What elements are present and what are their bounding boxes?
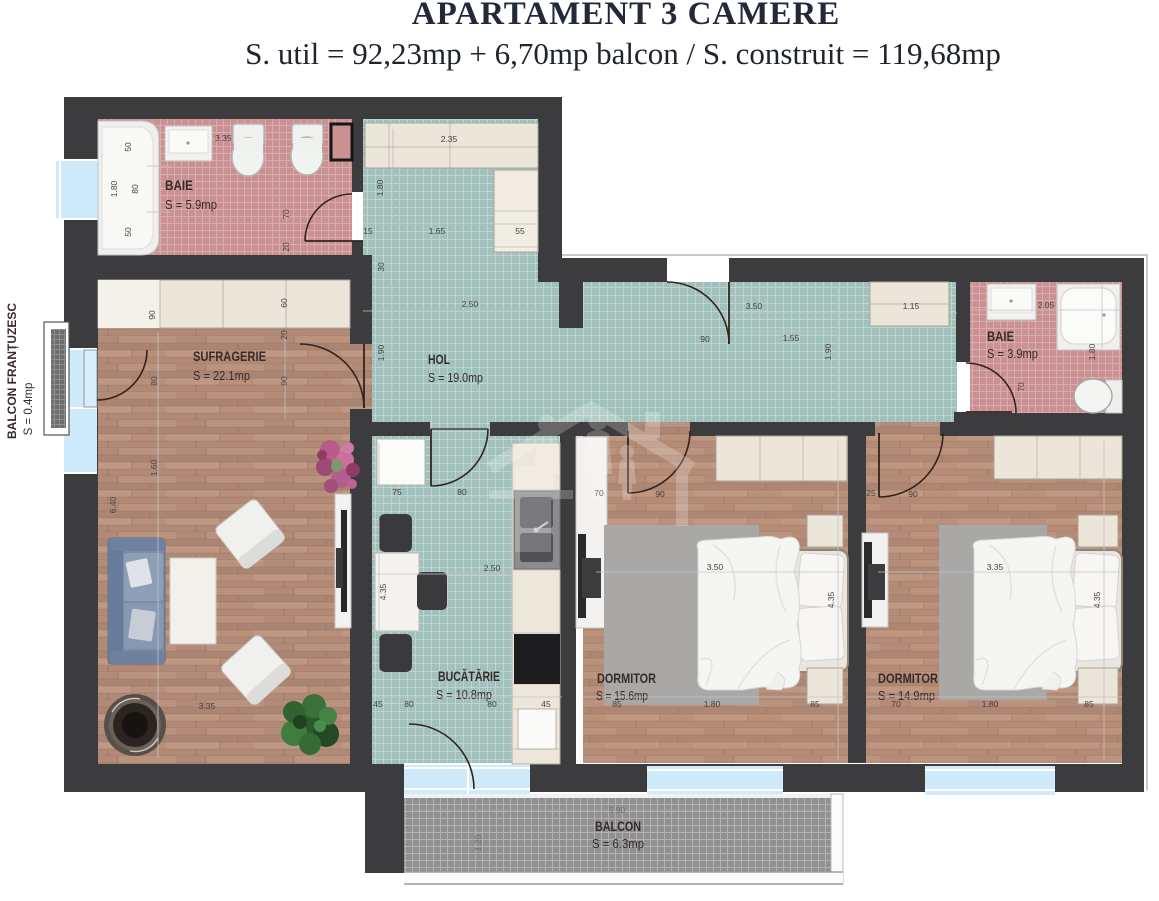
svg-text:90: 90 <box>700 334 710 344</box>
svg-text:S = 14.9mp: S = 14.9mp <box>878 688 935 703</box>
svg-text:45: 45 <box>373 699 383 709</box>
svg-text:50: 50 <box>123 227 133 237</box>
svg-text:3.50: 3.50 <box>746 301 763 311</box>
svg-text:4.35: 4.35 <box>826 591 836 608</box>
svg-text:BALCON FRANȚUZESC: BALCON FRANȚUZESC <box>5 303 19 439</box>
svg-text:80: 80 <box>130 184 140 194</box>
svg-text:1.80: 1.80 <box>704 699 721 709</box>
svg-text:1.55: 1.55 <box>783 333 800 343</box>
svg-text:SUFRAGERIE: SUFRAGERIE <box>193 348 266 364</box>
svg-text:2.05: 2.05 <box>1038 300 1055 310</box>
svg-text:2.50: 2.50 <box>484 563 501 573</box>
svg-text:50: 50 <box>123 142 133 152</box>
svg-text:S = 19.0mp: S = 19.0mp <box>428 370 483 385</box>
svg-text:20: 20 <box>279 330 289 340</box>
svg-text:3.35: 3.35 <box>215 133 232 143</box>
svg-text:1.65: 1.65 <box>429 226 446 236</box>
svg-text:5.90: 5.90 <box>609 805 626 815</box>
svg-text:1.90: 1.90 <box>823 343 833 360</box>
svg-text:4.35: 4.35 <box>378 583 388 600</box>
svg-text:4.35: 4.35 <box>1092 591 1102 608</box>
svg-text:90: 90 <box>147 310 157 320</box>
svg-text:85: 85 <box>612 699 622 709</box>
svg-text:S = 5.9mp: S = 5.9mp <box>165 197 217 212</box>
svg-text:60: 60 <box>279 298 289 308</box>
svg-text:3.50: 3.50 <box>707 562 724 572</box>
svg-text:90: 90 <box>279 376 289 386</box>
svg-text:85: 85 <box>1084 699 1094 709</box>
svg-text:80: 80 <box>149 376 159 386</box>
svg-text:1.80: 1.80 <box>375 179 385 196</box>
svg-text:6.40: 6.40 <box>108 496 118 513</box>
svg-text:S = 3.9mp: S = 3.9mp <box>987 346 1038 361</box>
svg-text:70: 70 <box>891 699 901 709</box>
svg-text:80: 80 <box>457 487 467 497</box>
svg-text:BUCĂTĂRIE: BUCĂTĂRIE <box>438 668 500 684</box>
svg-text:S = 0.4mp: S = 0.4mp <box>23 383 35 436</box>
svg-text:HOL: HOL <box>428 351 450 367</box>
svg-text:70: 70 <box>281 209 291 219</box>
svg-text:S = 6.3mp: S = 6.3mp <box>592 836 644 851</box>
svg-text:1.80: 1.80 <box>109 180 119 197</box>
svg-text:APARTAMENT 3 CAMERE: APARTAMENT 3 CAMERE <box>412 0 841 32</box>
svg-text:25: 25 <box>866 488 876 498</box>
svg-text:1.80: 1.80 <box>1087 343 1097 360</box>
svg-text:30: 30 <box>376 262 386 272</box>
svg-text:80: 80 <box>404 699 414 709</box>
svg-text:1.15: 1.15 <box>903 301 920 311</box>
svg-text:45: 45 <box>541 699 551 709</box>
svg-text:80: 80 <box>487 699 497 709</box>
svg-text:BAIE: BAIE <box>987 328 1014 344</box>
svg-text:S. util = 92,23mp + 6,70mp bal: S. util = 92,23mp + 6,70mp balcon / S. c… <box>245 36 1001 71</box>
svg-text:S = 15.6mp: S = 15.6mp <box>596 688 648 703</box>
svg-text:2.50: 2.50 <box>462 299 479 309</box>
svg-text:3.35: 3.35 <box>199 701 216 711</box>
svg-text:90: 90 <box>655 489 665 499</box>
svg-text:85: 85 <box>810 699 820 709</box>
svg-text:75: 75 <box>392 487 402 497</box>
svg-text:BALCON: BALCON <box>595 818 641 834</box>
svg-text:1.20: 1.20 <box>473 834 483 851</box>
svg-text:DORMITOR: DORMITOR <box>597 670 656 686</box>
svg-text:15: 15 <box>363 226 373 236</box>
svg-text:70: 70 <box>1016 382 1026 392</box>
svg-text:S = 22.1mp: S = 22.1mp <box>193 368 250 383</box>
svg-text:13: 13 <box>1016 413 1026 423</box>
svg-text:DORMITOR: DORMITOR <box>878 670 938 686</box>
svg-text:1.80: 1.80 <box>982 699 999 709</box>
svg-text:3.35: 3.35 <box>987 562 1004 572</box>
svg-text:55: 55 <box>515 226 525 236</box>
svg-text:2.35: 2.35 <box>441 134 458 144</box>
svg-text:90: 90 <box>908 489 918 499</box>
svg-text:1.60: 1.60 <box>149 459 159 476</box>
svg-text:S = 10.8mp: S = 10.8mp <box>436 687 492 702</box>
svg-text:20: 20 <box>281 242 291 252</box>
svg-text:BAIE: BAIE <box>165 177 193 193</box>
svg-text:1.90: 1.90 <box>376 344 386 361</box>
